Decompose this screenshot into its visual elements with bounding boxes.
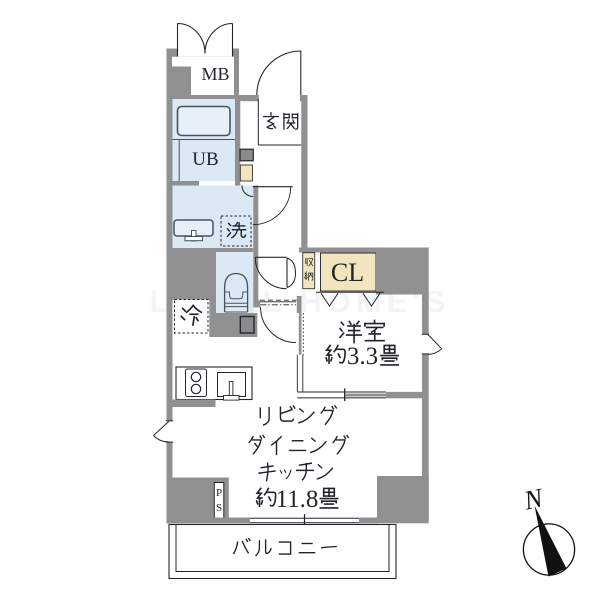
svg-text:MB: MB [201, 64, 229, 84]
svg-text:P: P [216, 487, 222, 499]
svg-text:3.3: 3.3 [347, 343, 378, 370]
svg-text:11.8: 11.8 [276, 486, 319, 513]
svg-text:UB: UB [192, 149, 218, 170]
svg-text:S: S [216, 502, 222, 514]
svg-text:CL: CL [331, 258, 364, 287]
